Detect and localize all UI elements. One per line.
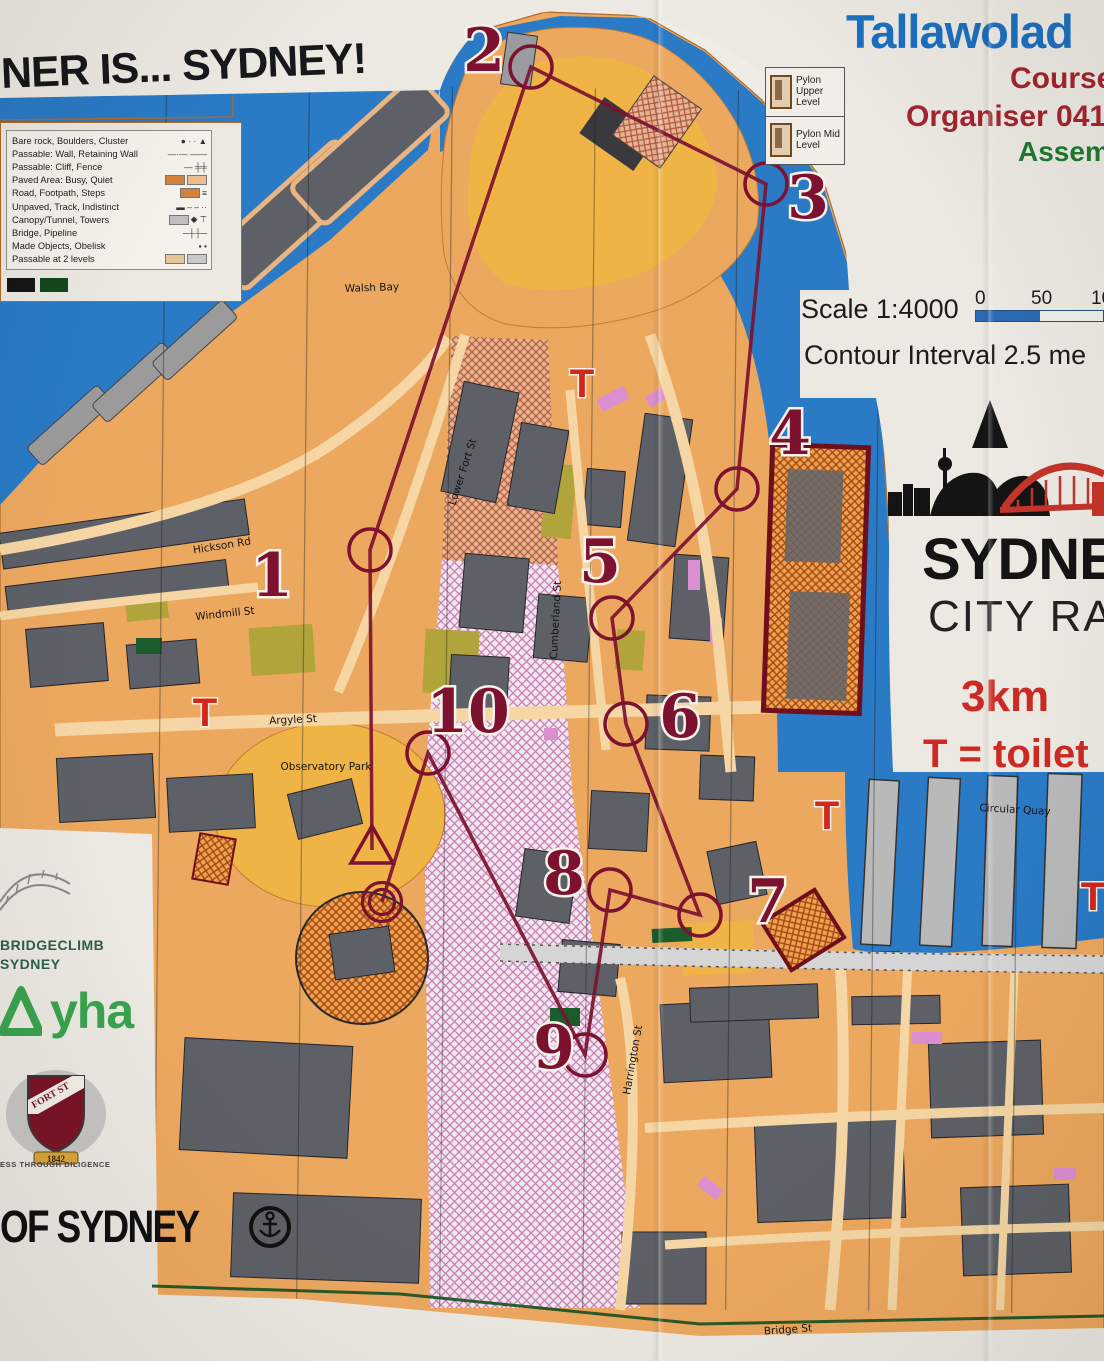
- legend-glyph: ▪ •: [199, 241, 207, 251]
- event-course: Course: [1010, 62, 1104, 96]
- legend-label: Passable at 2 levels: [12, 254, 165, 264]
- control-number-6: 6: [659, 682, 701, 752]
- sydney-city-race-logo-art: [886, 396, 1104, 528]
- legend-row: Bare rock, Boulders, Cluster● · · ▲: [12, 134, 207, 147]
- legend-symbol: [165, 254, 207, 264]
- legend-row: Passable: Cliff, Fence— ╪╪: [12, 160, 207, 173]
- legend-glyph: ◆ ⊤: [191, 214, 207, 225]
- legend-swatch: [180, 188, 200, 198]
- toilet-marker: T: [193, 691, 217, 735]
- scale-bar-track: [975, 310, 1104, 322]
- legend-label: Unpaved, Track, Indistinct: [12, 202, 176, 212]
- legend-symbol: ● · · ▲: [181, 136, 207, 146]
- control-number-7: 7: [747, 867, 789, 937]
- legend-label: Passable: Wall, Retaining Wall: [12, 149, 168, 159]
- legend-extra-swatches: [7, 278, 68, 292]
- scale-tick: 10: [1091, 288, 1104, 310]
- pylon-symbol-icon: [770, 123, 792, 157]
- legend-label: Canopy/Tunnel, Towers: [12, 215, 169, 225]
- control-number-4: 4: [769, 399, 811, 469]
- legend-swatch: [165, 175, 185, 185]
- street-label-observatory-park: Observatory Park: [281, 761, 373, 773]
- scale-bar-fill: [976, 311, 1040, 321]
- control-number-8: 8: [543, 839, 585, 909]
- legend-label: Made Objects, Obelisk: [12, 241, 199, 251]
- street-label-walsh-bay: Walsh Bay: [345, 281, 400, 295]
- anchor-icon: [248, 1200, 292, 1254]
- scale-label: Scale 1:4000: [801, 294, 959, 325]
- bridgeclimb-arch-icon: [0, 856, 72, 912]
- start-triangle-icon: [972, 400, 1008, 448]
- control-number-9: 9: [533, 1013, 575, 1083]
- logo-cityrace-text: CITY RACE: [928, 592, 1104, 642]
- legend-label: Bare rock, Boulders, Cluster: [12, 136, 181, 146]
- pylon-symbol-icon: [770, 75, 792, 109]
- legend-glyph: ● · · ▲: [181, 136, 207, 146]
- pylon-legend: Pylon Upper LevelPylon Mid Level: [765, 67, 845, 165]
- control-number-2: 2: [463, 16, 505, 86]
- toilet-marker: T: [815, 794, 839, 838]
- bridgeclimb-line1: BRIDGECLIMB: [0, 936, 104, 955]
- yha-triangle-icon: [0, 986, 42, 1036]
- event-name: Tallawolad: [846, 4, 1073, 59]
- legend-symbol: ─┼┼─: [183, 228, 207, 238]
- toilet-marker: T: [570, 362, 594, 406]
- control-number-10: 10: [426, 677, 510, 747]
- legend-row: Passable at 2 levels: [12, 253, 207, 266]
- legend-glyph: ▬ – – ··: [176, 202, 207, 212]
- toilet-note: T = toilet: [923, 732, 1089, 777]
- scale-ticks: 05010: [975, 288, 1104, 308]
- scale-tick: 0: [975, 288, 986, 310]
- toilet-marker: T: [1081, 875, 1104, 919]
- course-distance: 3km: [961, 672, 1049, 722]
- legend-symbol: —·— ——: [168, 149, 207, 159]
- pylon-row: Pylon Upper Level: [766, 68, 844, 117]
- legend-label: Paved Area: Busy, Quiet: [12, 175, 165, 185]
- legend-swatch: [165, 254, 185, 264]
- legend-row: Unpaved, Track, Indistinct▬ – – ··: [12, 200, 207, 213]
- pylon-row: Pylon Mid Level: [766, 117, 844, 165]
- legend-swatch: [169, 215, 189, 225]
- legend-glyph: ─┼┼─: [183, 228, 207, 238]
- legend-symbol: [165, 175, 207, 185]
- legend-glyph: —·— ——: [168, 149, 207, 159]
- crest-motto: ESS THROUGH DILIGENCE: [0, 1160, 115, 1169]
- legend-symbol: ≡: [180, 188, 207, 198]
- legend-symbol: ◆ ⊤: [169, 214, 207, 225]
- printed-orienteering-map-photo: { "palette": { "paper": "#ebe9e1", "wate…: [0, 0, 1104, 1361]
- legend-panel: Bare rock, Boulders, Cluster● · · ▲Passa…: [0, 122, 242, 302]
- legend-row: Passable: Wall, Retaining Wall—·— ——: [12, 147, 207, 160]
- legend-label: Passable: Cliff, Fence: [12, 162, 184, 172]
- legend-extra-swatch: [7, 278, 35, 292]
- event-organiser: Organiser 041: [906, 100, 1104, 134]
- legend-box: Bare rock, Boulders, Cluster● · · ▲Passa…: [6, 130, 212, 270]
- yha-text: yha: [50, 986, 133, 1036]
- legend-symbol: ▪ •: [199, 241, 207, 251]
- scale-bar: 05010: [975, 288, 1104, 322]
- control-number-3: 3: [787, 163, 829, 233]
- legend-glyph: — ╪╪: [184, 162, 207, 172]
- legend-label: Road, Footpath, Steps: [12, 188, 180, 198]
- event-assembly: Assem: [1018, 136, 1104, 168]
- legend-swatch: [187, 254, 207, 264]
- yha-logo: yha: [0, 986, 133, 1036]
- legend-row: Road, Footpath, Steps≡: [12, 187, 207, 200]
- legend-row: Bridge, Pipeline─┼┼─: [12, 226, 207, 239]
- fort-street-crest: FORT ST 1842: [4, 1066, 108, 1166]
- legend-symbol: ▬ – – ··: [176, 202, 207, 212]
- pylon-label: Pylon Upper Level: [796, 75, 842, 108]
- legend-glyph: ≡: [202, 188, 207, 198]
- scale-tick: 50: [1031, 288, 1052, 310]
- contour-interval-label: Contour Interval 2.5 me: [804, 340, 1086, 371]
- legend-row: Paved Area: Busy, Quiet: [12, 174, 207, 187]
- legend-row: Canopy/Tunnel, Towers◆ ⊤: [12, 213, 207, 226]
- city-of-sydney-logo: OF SYDNEY: [0, 1200, 292, 1254]
- logo-sydney-text: SYDNEY: [922, 526, 1104, 593]
- legend-rows: Bare rock, Boulders, Cluster● · · ▲Passa…: [12, 134, 207, 266]
- harbour-bridge-icon: [1000, 466, 1104, 516]
- bridgeclimb-logo-text: BRIDGECLIMB SYDNEY: [0, 936, 104, 974]
- city-of-sydney-text: OF SYDNEY: [0, 1201, 198, 1253]
- legend-extra-swatch: [40, 278, 68, 292]
- pylon-label: Pylon Mid Level: [796, 129, 842, 151]
- legend-label: Bridge, Pipeline: [12, 228, 183, 238]
- legend-symbol: — ╪╪: [184, 162, 207, 172]
- bridgeclimb-line2: SYDNEY: [0, 955, 104, 974]
- legend-row: Made Objects, Obelisk▪ •: [12, 240, 207, 253]
- legend-swatch: [187, 175, 207, 185]
- control-number-5: 5: [579, 527, 621, 597]
- street-label-argyle-st: Argyle St: [269, 713, 317, 727]
- control-number-1: 1: [251, 541, 293, 611]
